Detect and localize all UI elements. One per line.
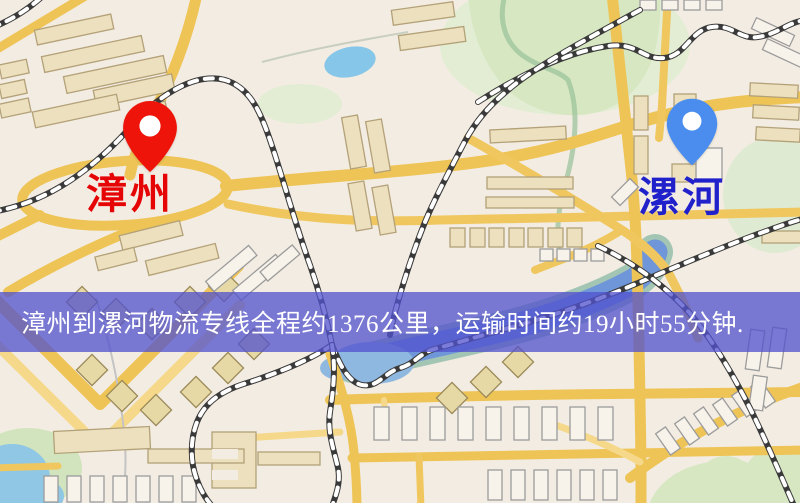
map-screenshot: 漳州 漯河 漳州到漯河物流专线全程约1376公里，运输时间约19小时55分钟. <box>0 0 800 503</box>
map-canvas <box>0 0 800 503</box>
route-info-banner: 漳州到漯河物流专线全程约1376公里，运输时间约19小时55分钟. <box>0 292 800 352</box>
destination-pin-shape <box>667 99 717 166</box>
destination-pin[interactable] <box>665 97 719 167</box>
destination-pin-hole <box>683 112 702 131</box>
destination-city-label: 漯河 <box>638 177 726 218</box>
route-info-text: 漳州到漯河物流专线全程约1376公里，运输时间约19小时55分钟. <box>0 304 744 340</box>
origin-pin-hole <box>139 115 160 136</box>
origin-pin[interactable] <box>121 100 179 173</box>
origin-city-label: 漳州 <box>86 174 174 215</box>
